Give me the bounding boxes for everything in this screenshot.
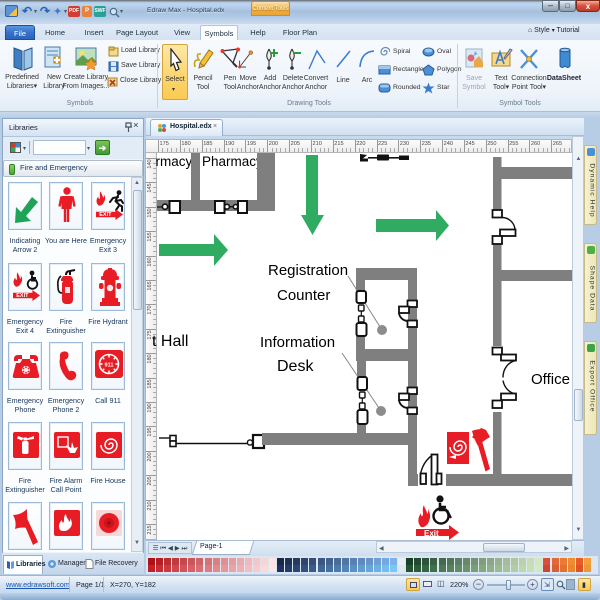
svg-text:Registration: Registration	[268, 262, 348, 279]
svg-text:Exit: Exit	[424, 529, 439, 538]
svg-text:Office: Office	[531, 371, 570, 388]
svg-text:EXIT: EXIT	[99, 212, 112, 218]
svg-text:EXIT: EXIT	[16, 293, 29, 299]
svg-text:911: 911	[104, 362, 113, 368]
svg-text:Information: Information	[260, 334, 335, 351]
svg-text:rmacy: rmacy	[156, 154, 193, 169]
svg-text:t Hall: t Hall	[152, 333, 188, 350]
svg-text:Counter: Counter	[277, 287, 330, 304]
svg-text:Desk: Desk	[277, 358, 314, 375]
svg-text:Pharmacy: Pharmacy	[202, 154, 263, 169]
